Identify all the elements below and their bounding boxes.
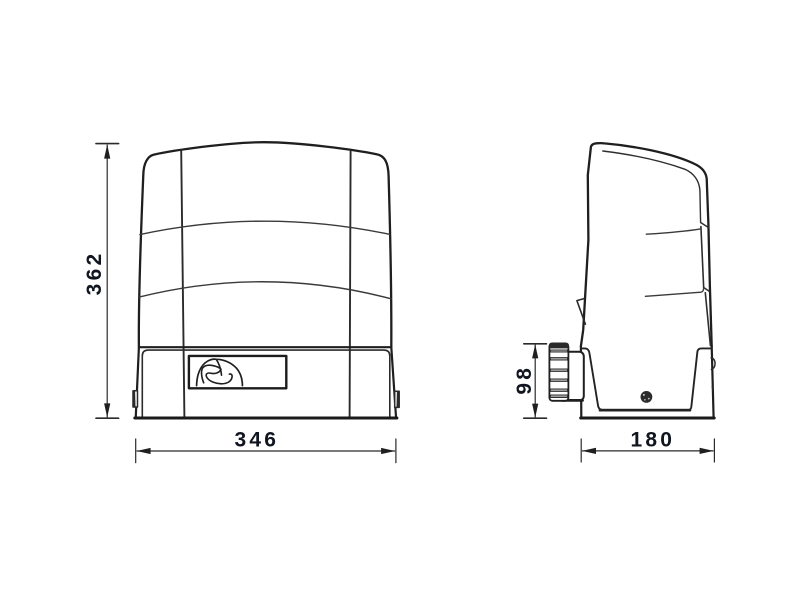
svg-text:346: 346 (234, 428, 279, 451)
svg-text:98: 98 (513, 365, 536, 395)
svg-text:362: 362 (83, 251, 106, 296)
svg-text:180: 180 (630, 429, 675, 452)
